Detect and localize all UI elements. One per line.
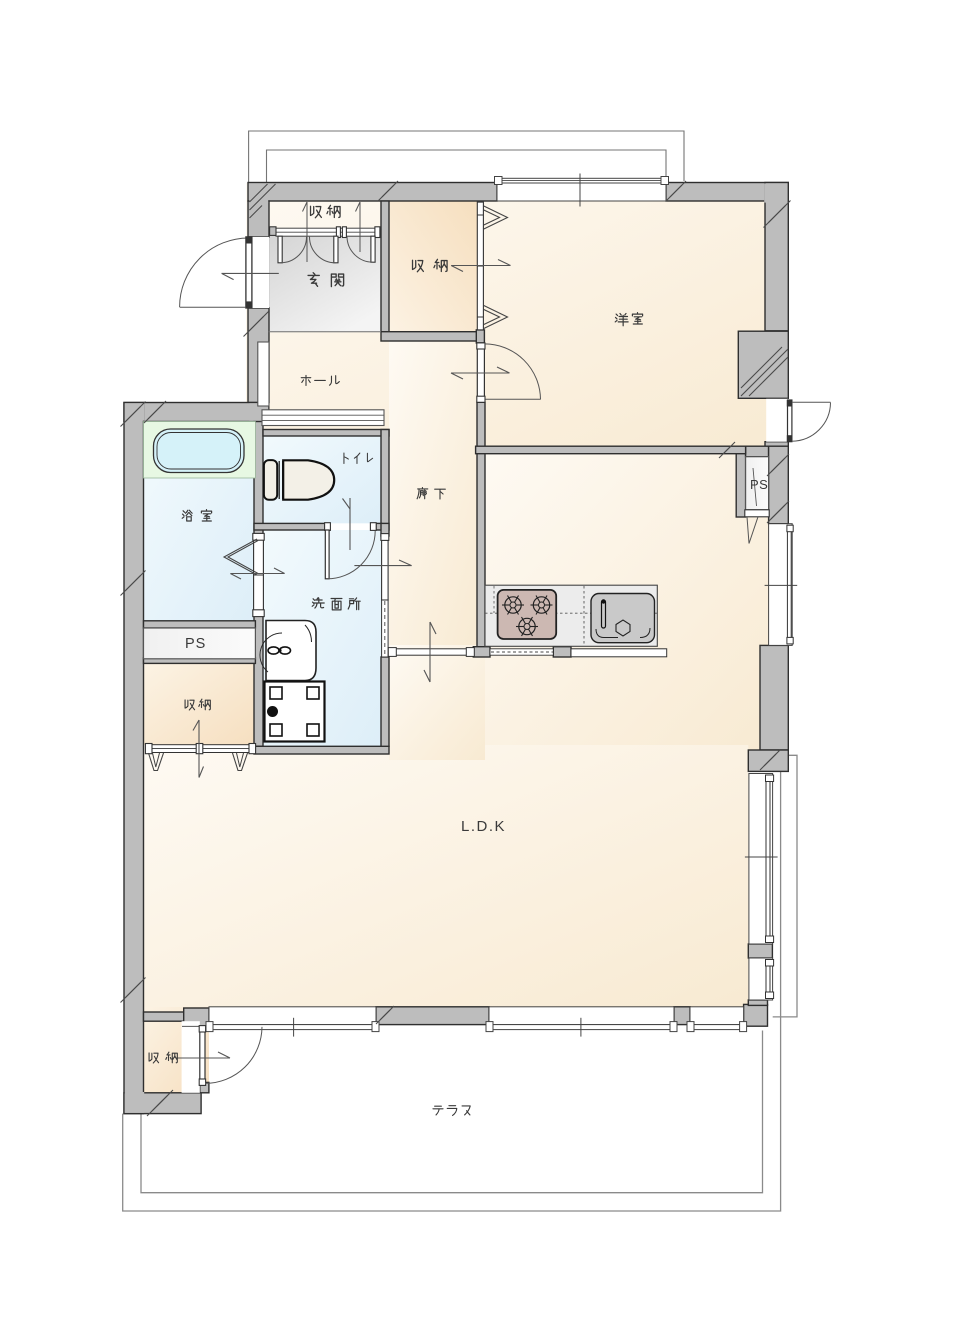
svg-text:L.D.K: L.D.K [461, 818, 506, 835]
svg-text:PS: PS [185, 636, 206, 652]
svg-text:PS: PS [750, 477, 768, 492]
